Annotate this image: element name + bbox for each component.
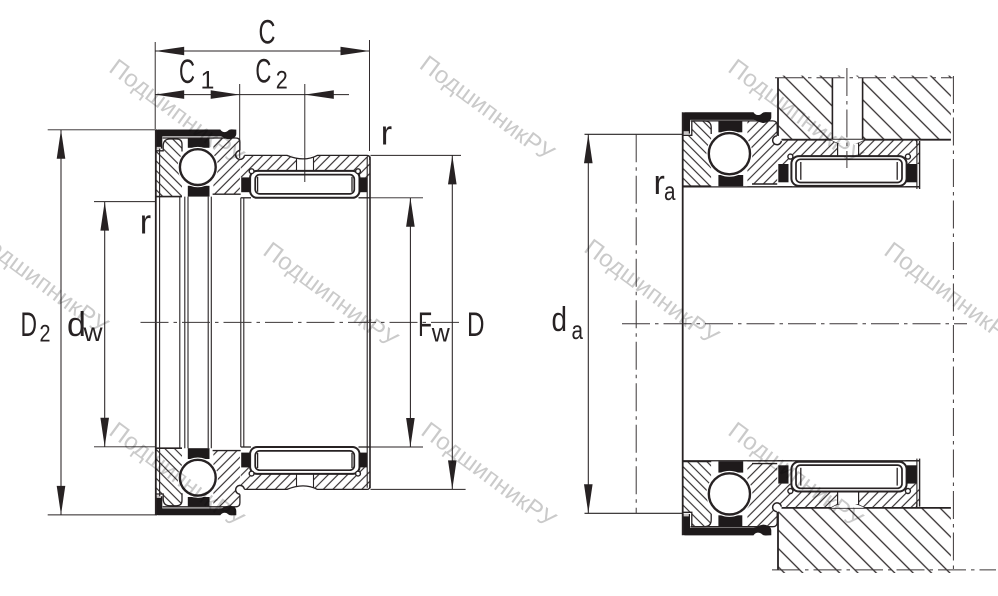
svg-text:w: w bbox=[431, 318, 450, 348]
svg-text:D: D bbox=[21, 306, 38, 344]
svg-text:2: 2 bbox=[276, 66, 288, 94]
svg-text:d: d bbox=[552, 301, 568, 339]
svg-text:D: D bbox=[467, 306, 485, 344]
svg-text:1: 1 bbox=[201, 67, 215, 95]
svg-text:r: r bbox=[140, 204, 151, 242]
svg-text:r: r bbox=[381, 115, 392, 153]
svg-text:F: F bbox=[418, 306, 432, 344]
svg-text:a: a bbox=[572, 315, 584, 345]
svg-text:C: C bbox=[255, 53, 271, 91]
svg-text:C: C bbox=[259, 14, 276, 52]
svg-text:a: a bbox=[664, 176, 676, 206]
svg-text:C: C bbox=[179, 53, 195, 91]
svg-text:2: 2 bbox=[40, 321, 51, 348]
